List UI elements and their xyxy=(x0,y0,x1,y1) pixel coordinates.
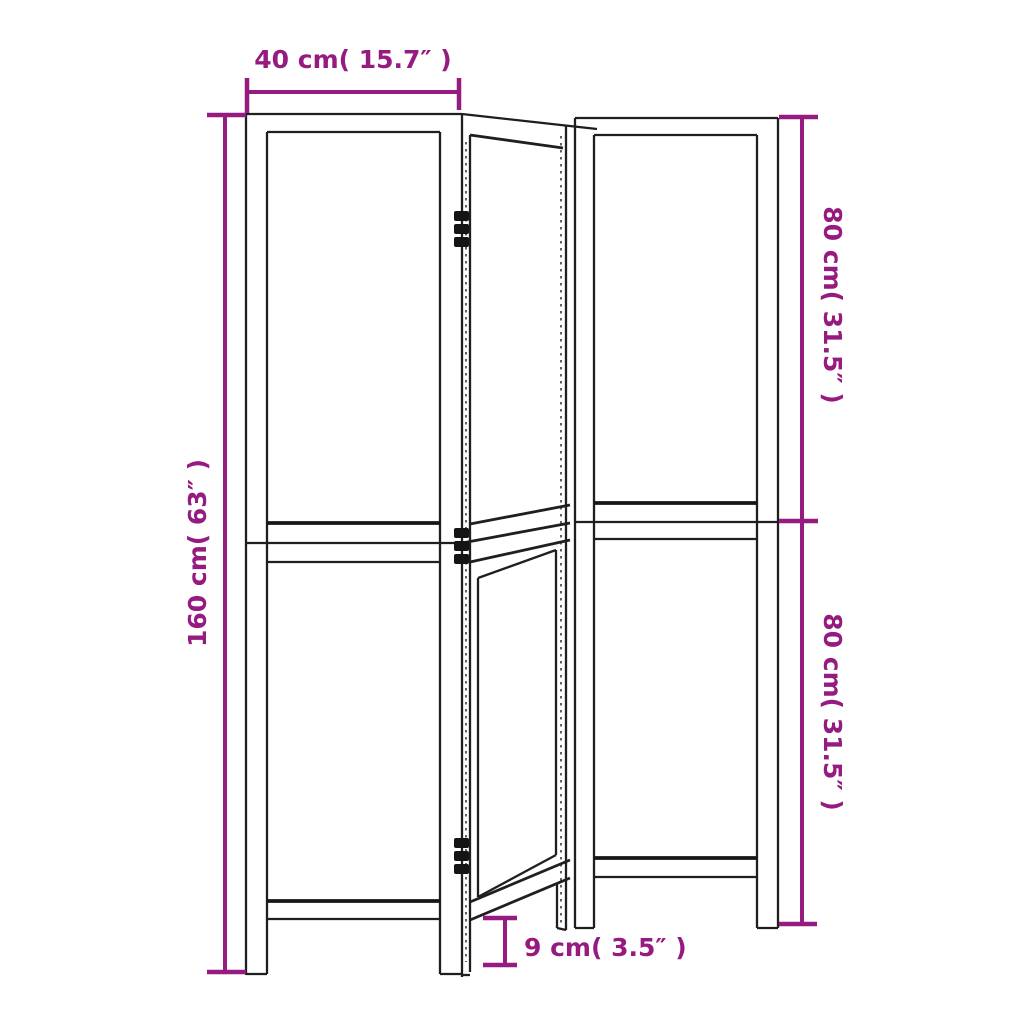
middle-panel-module-joint xyxy=(462,523,570,543)
left-panel xyxy=(246,114,462,977)
hinge-top xyxy=(454,211,469,247)
middle-panel-right-leg-bottom xyxy=(557,928,566,930)
lower-section-label: 80 cm( 31.5″ ) xyxy=(818,613,847,810)
hinge-bottom-knuckle-1 xyxy=(454,838,469,848)
leg-height-label: 9 cm( 3.5″ ) xyxy=(524,933,687,962)
hinge-top-knuckle-3 xyxy=(454,237,469,247)
dimension-upper-section-height: 80 cm( 31.5″ ) xyxy=(779,117,847,521)
hinge-middle-knuckle-1 xyxy=(454,528,469,538)
dimension-leg-height: 9 cm( 3.5″ ) xyxy=(483,918,687,965)
middle-panel xyxy=(462,114,597,975)
hinge-bottom-knuckle-2 xyxy=(454,851,469,861)
dimension-total-height: 160 cm( 63″ ) xyxy=(183,115,246,972)
hinge-middle-knuckle-3 xyxy=(454,554,469,564)
hinge-middle xyxy=(454,528,469,564)
dimension-panel-width: 40 cm( 15.7″ ) xyxy=(247,45,459,113)
hinge-top-knuckle-2 xyxy=(454,224,469,234)
panel-width-label: 40 cm( 15.7″ ) xyxy=(254,45,451,74)
hinge-top-knuckle-1 xyxy=(454,211,469,221)
middle-panel-top-rail-inner xyxy=(470,135,563,148)
hinge-middle-knuckle-2 xyxy=(454,541,469,551)
middle-panel-bottom-rail-bottom xyxy=(470,878,570,920)
dimension-lower-section-height: 80 cm( 31.5″ ) xyxy=(779,521,847,924)
middle-panel-inset-bottom xyxy=(478,855,556,897)
upper-section-label: 80 cm( 31.5″ ) xyxy=(818,206,847,403)
right-panel xyxy=(575,118,778,928)
middle-panel-joint-rail-top xyxy=(470,505,570,524)
middle-panel-top-edge xyxy=(462,114,597,129)
middle-panel-bottom-rail-top xyxy=(470,860,570,902)
middle-panel-inset-top xyxy=(478,550,556,578)
hinge-bottom-knuckle-3 xyxy=(454,864,469,874)
hinge-bottom xyxy=(454,838,469,874)
total-height-label: 160 cm( 63″ ) xyxy=(183,459,212,647)
product-dimension-diagram: 40 cm( 15.7″ ) 160 cm( 63″ ) 80 cm( 31.5… xyxy=(0,0,1024,1024)
